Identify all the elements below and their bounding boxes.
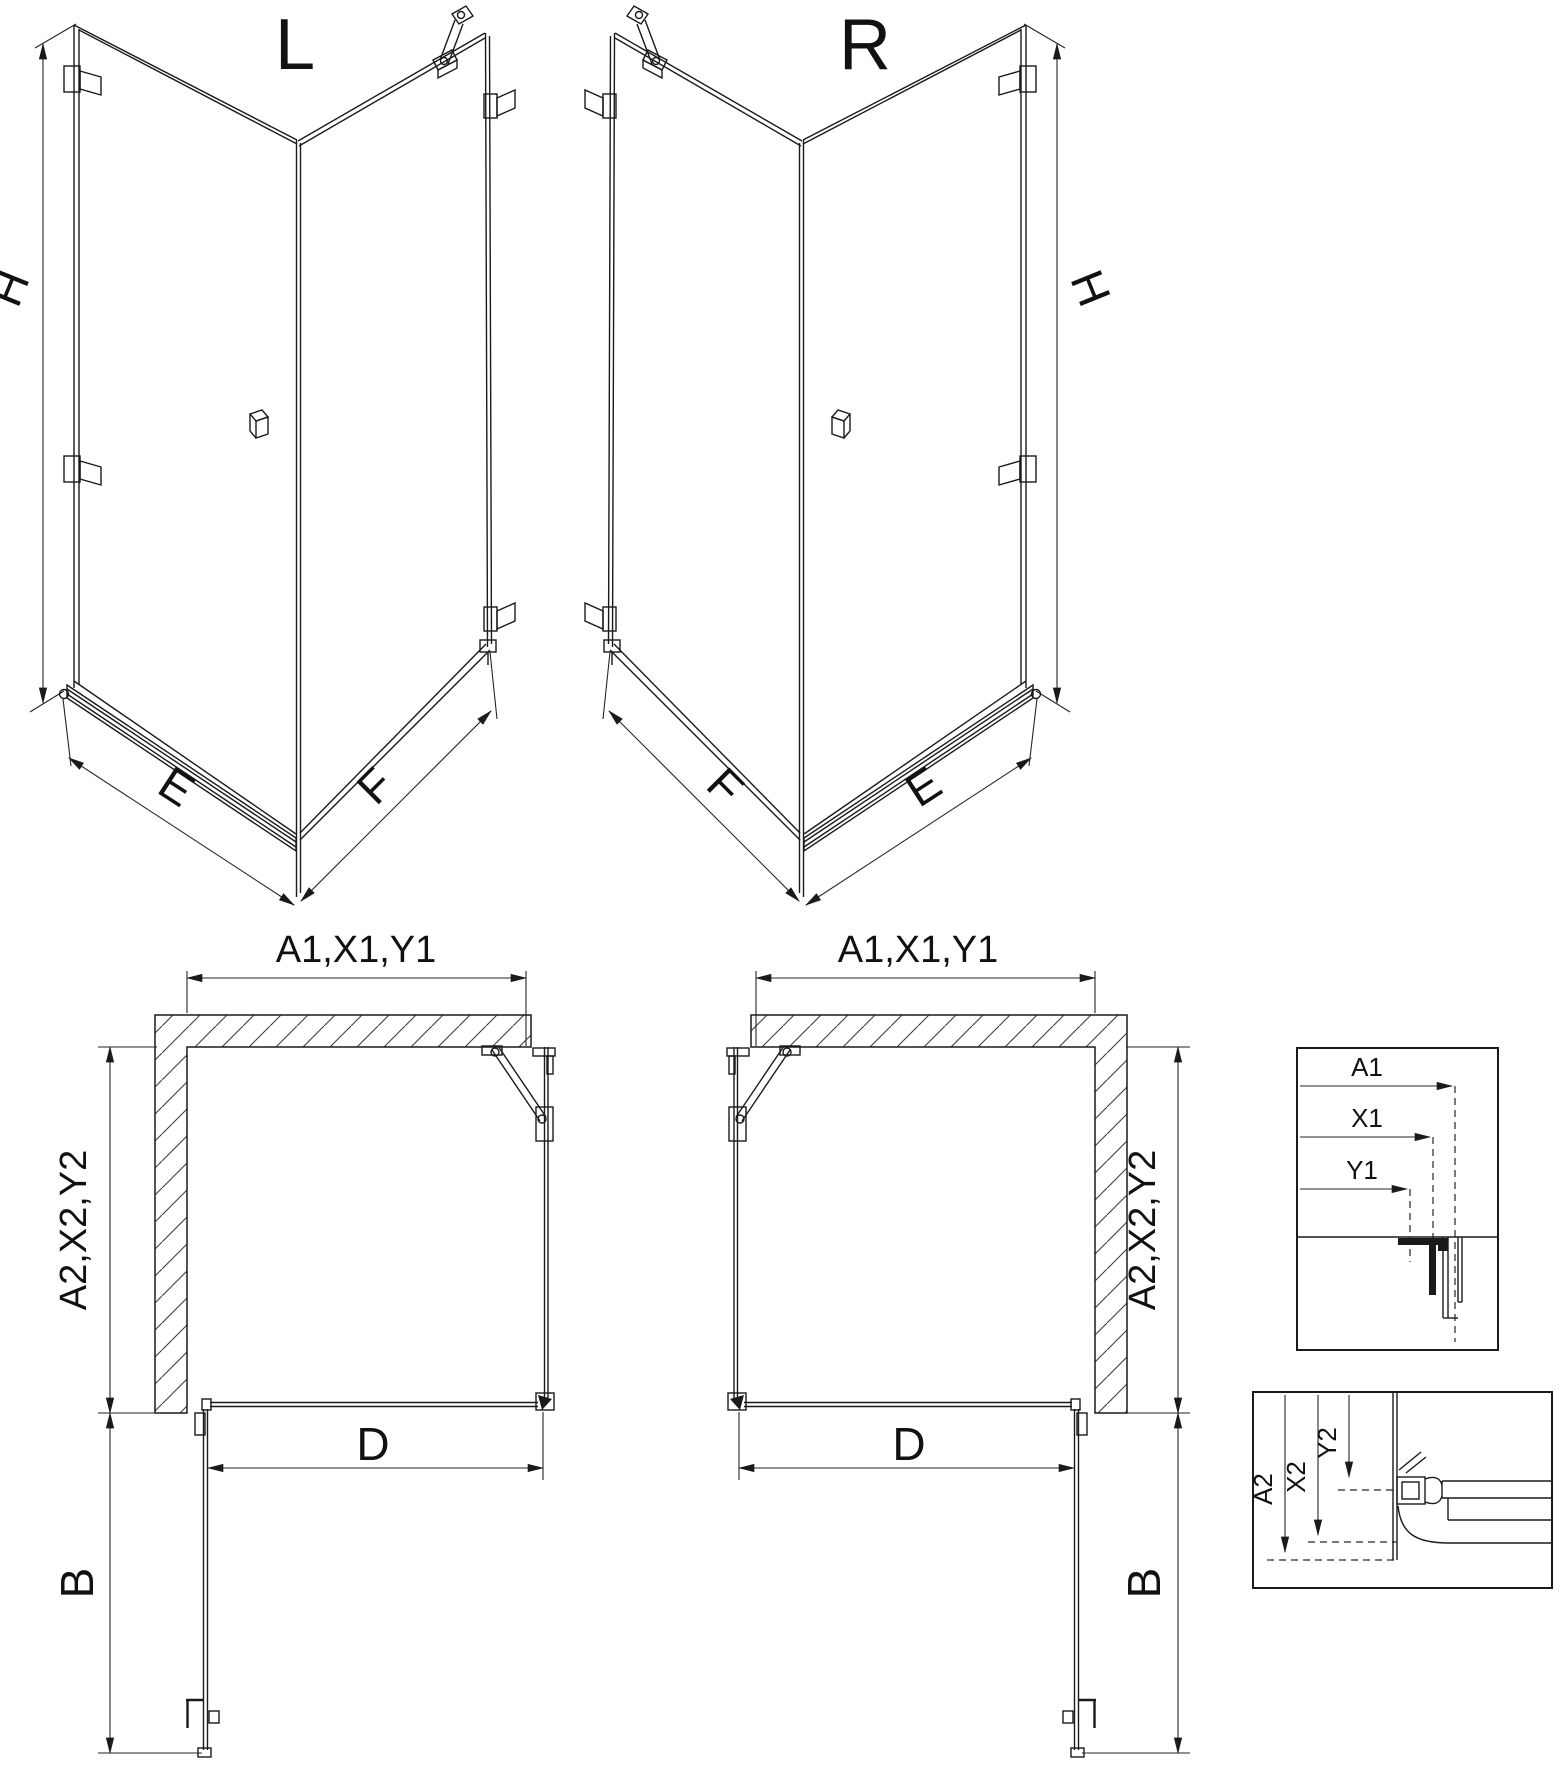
door-width-label: D xyxy=(356,1418,389,1470)
detail-a2-label: A2 xyxy=(1248,1473,1278,1505)
support-arm-plan-icon xyxy=(482,1046,553,1141)
wall-bracket-bottom-icon xyxy=(484,603,515,631)
plan-width-label: A1,X1,Y1 xyxy=(276,929,437,971)
detail-x2-label: X2 xyxy=(1281,1461,1311,1493)
plan-depth-label: A2,X2,Y2 xyxy=(53,1150,95,1311)
fixed-panel xyxy=(298,33,496,840)
height-label-right: H xyxy=(1061,263,1122,313)
support-arm-plan-icon xyxy=(729,1046,800,1141)
bottom-width-dimensions xyxy=(63,652,497,905)
door-open-plan xyxy=(186,1409,219,1757)
door-swing-label: B xyxy=(1118,1568,1170,1599)
width-f-label-right: F xyxy=(697,757,754,814)
door-hinge-top-icon xyxy=(64,66,101,95)
plan-view-left: A1,X1,Y1 A2,X2,Y2 B xyxy=(51,929,555,1757)
iso-view-left-geometry xyxy=(30,6,515,905)
door-swing-label: B xyxy=(51,1568,103,1599)
variant-label-left: L xyxy=(275,5,315,85)
technical-drawing-page: L H E F R H F E A1,X1,Y1 A2,X2,Y2 B xyxy=(0,0,1563,1769)
detail-a1-label: A1 xyxy=(1351,1052,1383,1082)
detail-y2-label: Y2 xyxy=(1312,1427,1342,1459)
wall-profile-section xyxy=(1297,1237,1498,1318)
wall-bracket-top-icon xyxy=(484,90,515,118)
plan-view-right: A1,X1,Y1 A2,X2,Y2 B xyxy=(727,929,1190,1757)
detail-box-width: A1 X1 Y1 xyxy=(1297,1048,1498,1350)
plan-width-label: A1,X1,Y1 xyxy=(838,929,999,971)
door-hinge-bottom-icon xyxy=(64,456,101,485)
wall-section xyxy=(155,1015,531,1413)
shower-enclosure-diagram: L H E F R H F E A1,X1,Y1 A2,X2,Y2 B xyxy=(0,0,1563,1769)
detail-box-depth: A2 X2 Y2 xyxy=(1248,1392,1552,1588)
door-open-plan xyxy=(1063,1409,1096,1757)
plan-depth-label: A2,X2,Y2 xyxy=(1122,1150,1164,1311)
door-handle-icon xyxy=(250,410,268,438)
detail-y1-label: Y1 xyxy=(1346,1155,1378,1185)
tray-profile-section xyxy=(1393,1392,1552,1560)
height-dimension xyxy=(30,24,76,712)
door-handle-plan-icon xyxy=(1063,1700,1096,1728)
variant-label-right: R xyxy=(839,5,891,85)
support-arm-icon xyxy=(433,6,473,78)
width-f-label-left: F xyxy=(346,757,403,814)
iso-view-right-geometry xyxy=(585,6,1070,905)
door-closed-plan xyxy=(744,1399,1080,1410)
fixed-panel-plan xyxy=(533,1047,555,1398)
detail-x1-label: X1 xyxy=(1351,1103,1383,1133)
door-closed-plan xyxy=(202,1399,538,1410)
plan-depth-dimension xyxy=(98,1047,158,1413)
door-handle-plan-icon xyxy=(186,1700,219,1728)
fixed-panel-plan xyxy=(727,1047,749,1398)
wall-section xyxy=(751,1015,1127,1413)
door-width-label: D xyxy=(892,1418,925,1470)
height-label-left: H xyxy=(0,263,39,313)
